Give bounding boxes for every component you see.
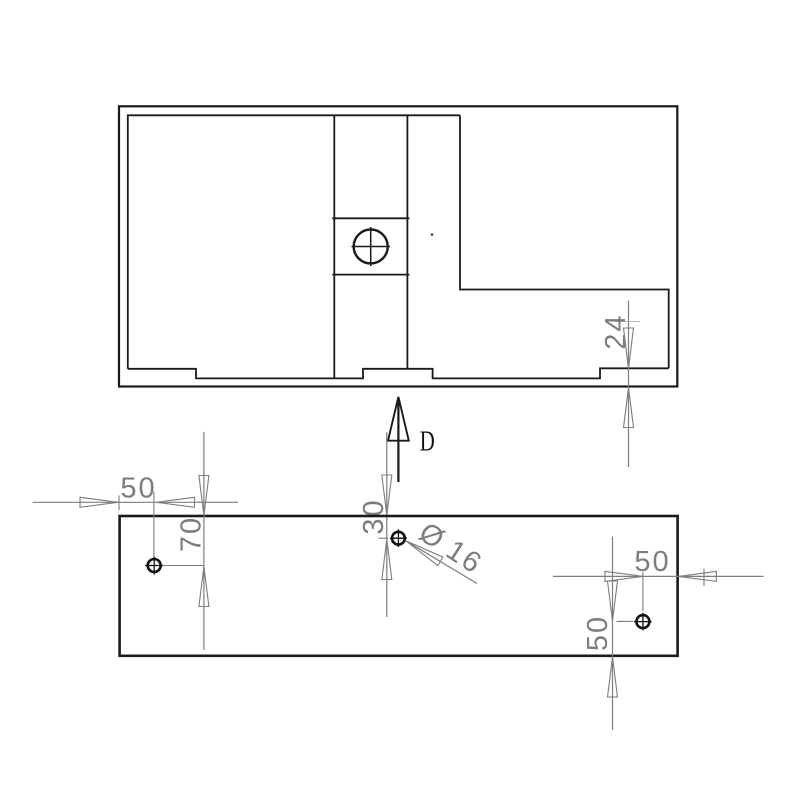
svg-text:D: D [420, 427, 435, 458]
svg-text:50: 50 [120, 473, 156, 505]
svg-text:24: 24 [600, 313, 632, 349]
svg-text:70: 70 [176, 516, 208, 552]
svg-text:Ø 16: Ø 16 [413, 517, 488, 581]
svg-text:50: 50 [582, 615, 614, 651]
svg-text:50: 50 [634, 546, 670, 578]
